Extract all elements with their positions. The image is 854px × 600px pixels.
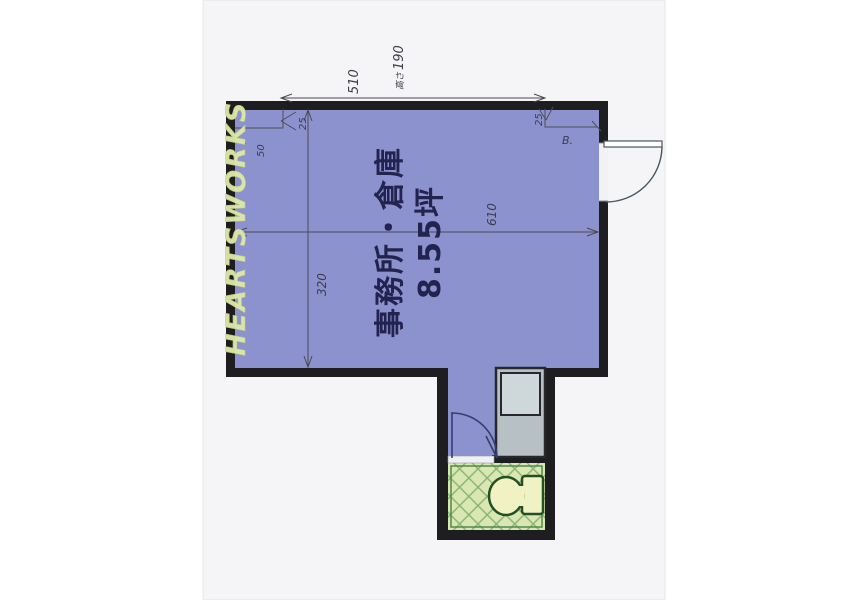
toilet-bowl-tank-joint — [513, 486, 524, 506]
room-area-text: 8.55坪 — [413, 185, 448, 299]
wall-bottom-left — [226, 368, 448, 377]
wall-right-lower — [599, 201, 608, 377]
height-label: 高さ — [395, 71, 406, 90]
room-name-text: 事務所・倉庫 — [373, 146, 408, 338]
wall-top — [226, 101, 608, 110]
height-value: 190 — [392, 45, 407, 70]
toilet-tank — [522, 476, 543, 514]
floor-plan-drawing: 510 高さ190 610 320 25 50 25 B. HEARTSWORK… — [0, 0, 854, 600]
fixture-unit — [496, 368, 545, 457]
entrance-door-opening — [599, 143, 608, 201]
vestibule-door-threshold — [448, 456, 494, 463]
door-note-text: B. — [562, 134, 573, 147]
wall-toilet-bottom — [437, 530, 555, 540]
wall-right-upper — [599, 101, 608, 143]
dim-text-corner-left-50: 50 — [256, 144, 267, 157]
dim-text-corner-left-25: 25 — [298, 117, 309, 130]
dim-text-610: 610 — [485, 203, 499, 226]
dim-text-510: 510 — [347, 69, 362, 94]
wall-bumpout-left — [437, 368, 448, 540]
wall-bumpout-right — [545, 368, 555, 540]
dim-text-320: 320 — [315, 273, 329, 296]
toilet — [489, 476, 543, 515]
dim-text-corner-right-25: 25 — [534, 113, 545, 126]
floor-plan-scan: 510 高さ190 610 320 25 50 25 B. HEARTSWORK… — [0, 0, 854, 600]
watermark-text: HEARTSWORKS — [221, 101, 252, 356]
entrance-door-leaf — [604, 141, 662, 147]
fixture-unit-top — [501, 373, 540, 415]
